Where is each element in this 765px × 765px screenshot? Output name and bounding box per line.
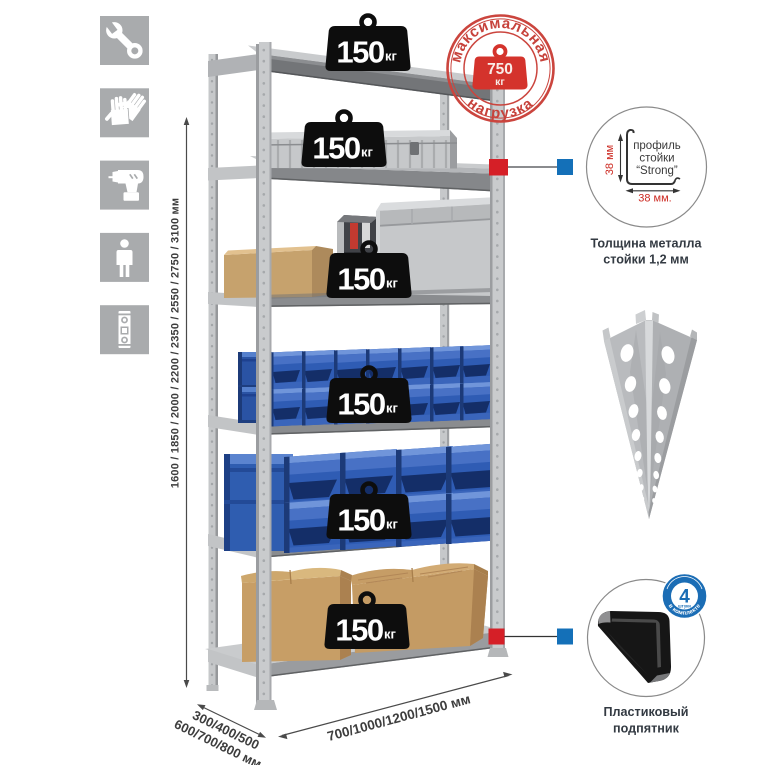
svg-text:стойки: стойки xyxy=(639,153,674,165)
svg-text:1600 / 1850 / 2000 / 2200 / 23: 1600 / 1850 / 2000 / 2200 / 2350 / 2550 … xyxy=(170,198,182,488)
svg-text:подпятник: подпятник xyxy=(613,722,680,736)
svg-text:профиль: профиль xyxy=(633,140,681,152)
svg-text:кг: кг xyxy=(495,76,505,88)
svg-text:Пластиковый: Пластиковый xyxy=(603,705,688,719)
svg-text:Толщина металла: Толщина металла xyxy=(590,237,702,251)
svg-text:стойки 1,2 мм: стойки 1,2 мм xyxy=(603,253,689,267)
svg-text:штуки: штуки xyxy=(678,604,691,609)
svg-text:“Strong”: “Strong” xyxy=(636,165,678,177)
svg-text:38 мм.: 38 мм. xyxy=(638,193,671,205)
svg-text:38 мм: 38 мм xyxy=(604,145,616,175)
